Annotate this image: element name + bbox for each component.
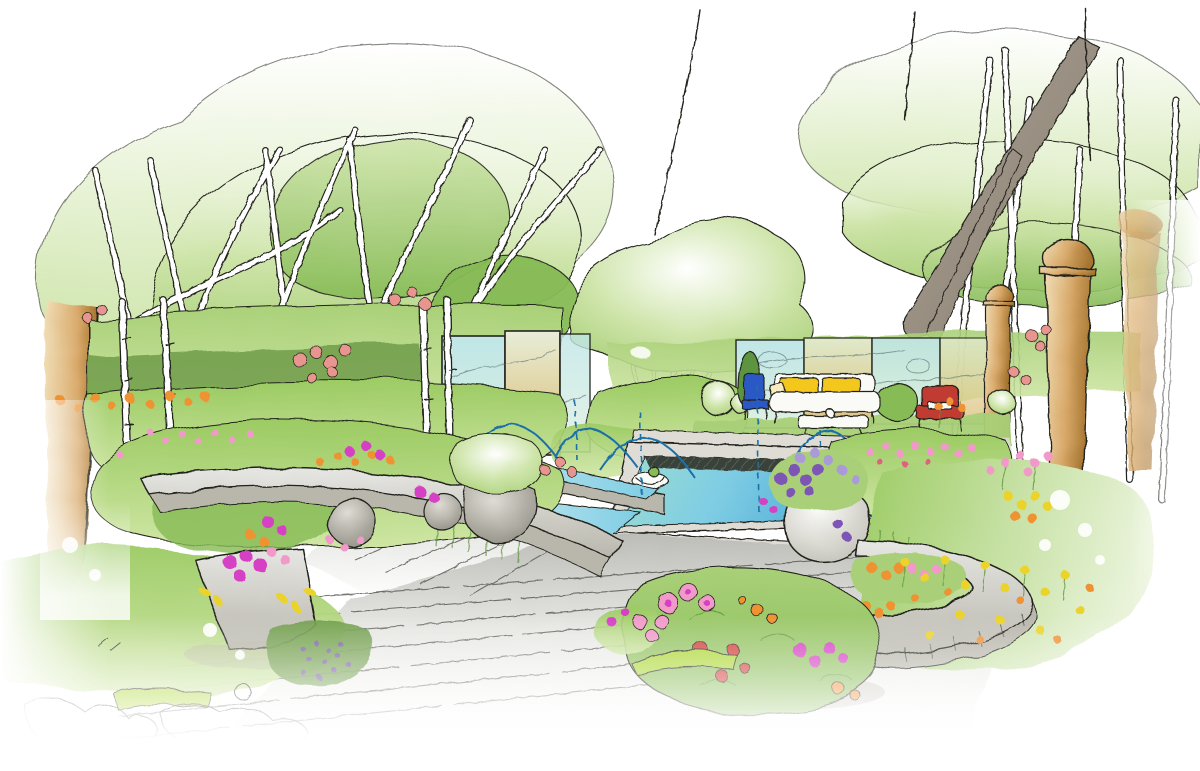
garden-sketch — [0, 0, 1200, 771]
garden-sketch-canvas — [0, 0, 1200, 771]
pot-shrub — [450, 434, 542, 493]
stone-sphere — [328, 498, 376, 546]
